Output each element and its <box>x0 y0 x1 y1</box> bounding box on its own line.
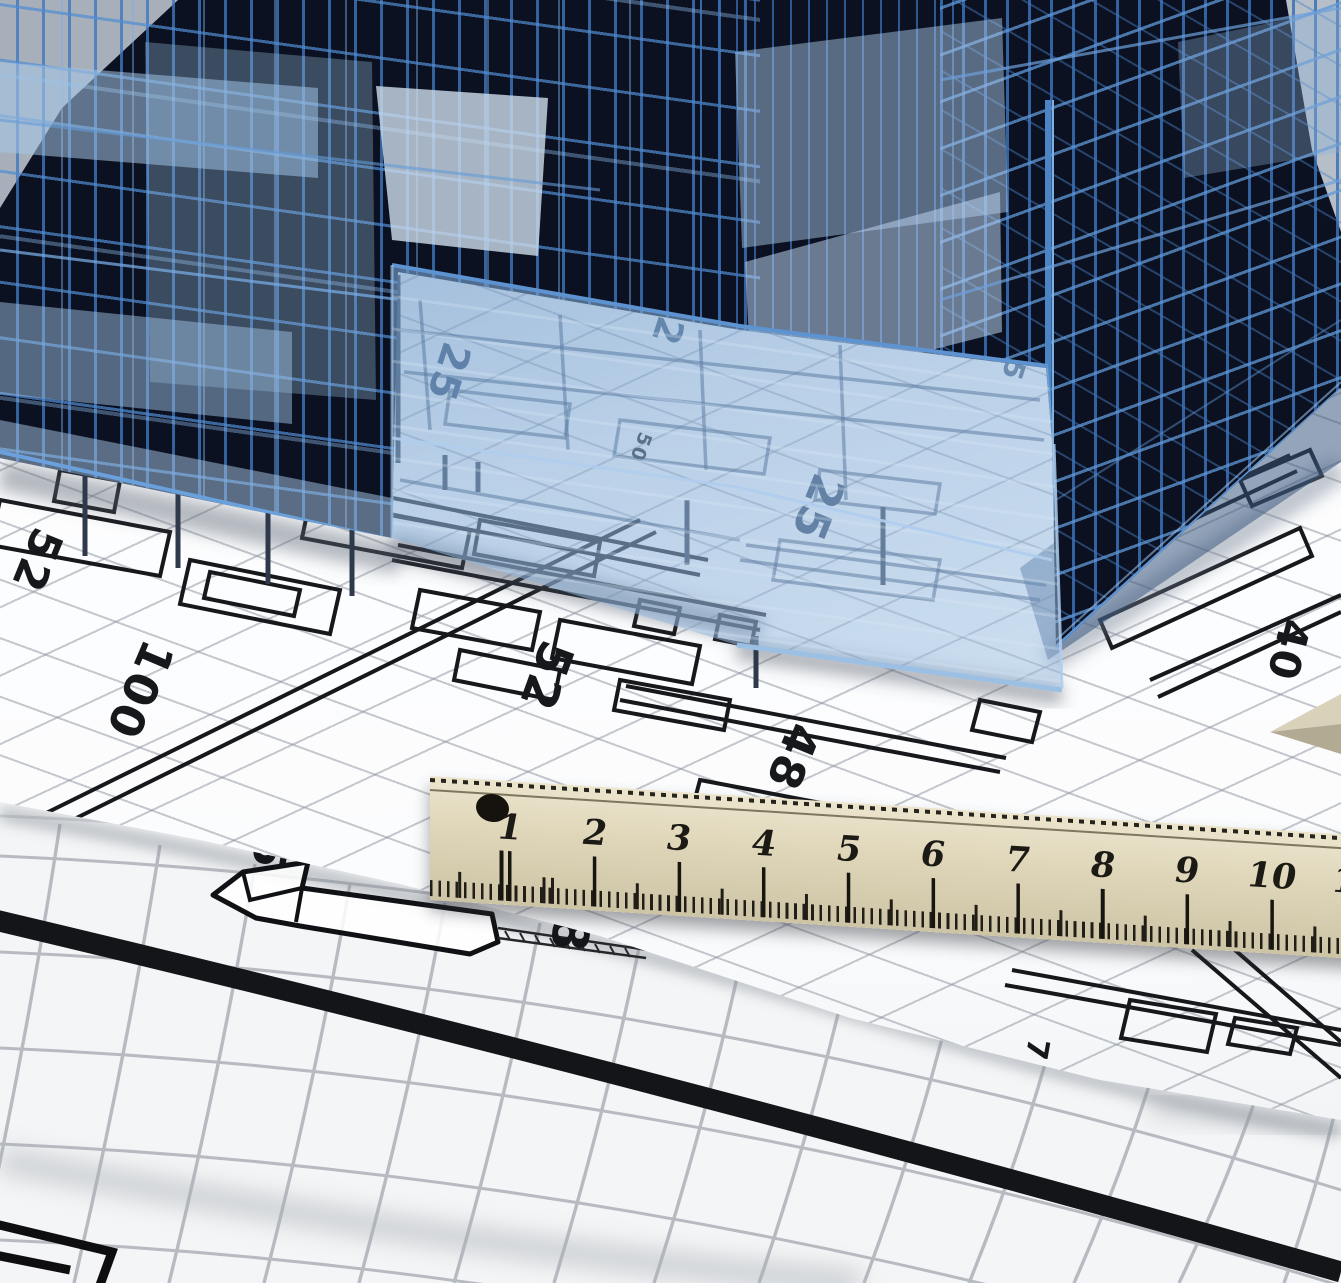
ruler-number: 2 <box>563 810 627 855</box>
ruler-number: 4 <box>732 821 796 866</box>
ruler-number: 11 <box>1325 859 1341 904</box>
ruler-number: 10 <box>1240 854 1304 899</box>
ruler-number: 7 <box>986 837 1050 882</box>
plan-bar-corner <box>0 1218 112 1283</box>
ruler-number: 5 <box>817 827 881 872</box>
plan-number-small: 7 <box>1019 1036 1053 1064</box>
blueprint-scene: 5 48 <box>0 0 1341 1283</box>
ruler-number: 6 <box>901 832 965 877</box>
ruler-number: 9 <box>1155 848 1219 893</box>
ruler-number: 1 <box>478 805 542 850</box>
ruler-number: 3 <box>647 816 711 861</box>
ruler-number: 8 <box>1071 843 1135 888</box>
glass-slab-edges <box>0 0 1341 760</box>
